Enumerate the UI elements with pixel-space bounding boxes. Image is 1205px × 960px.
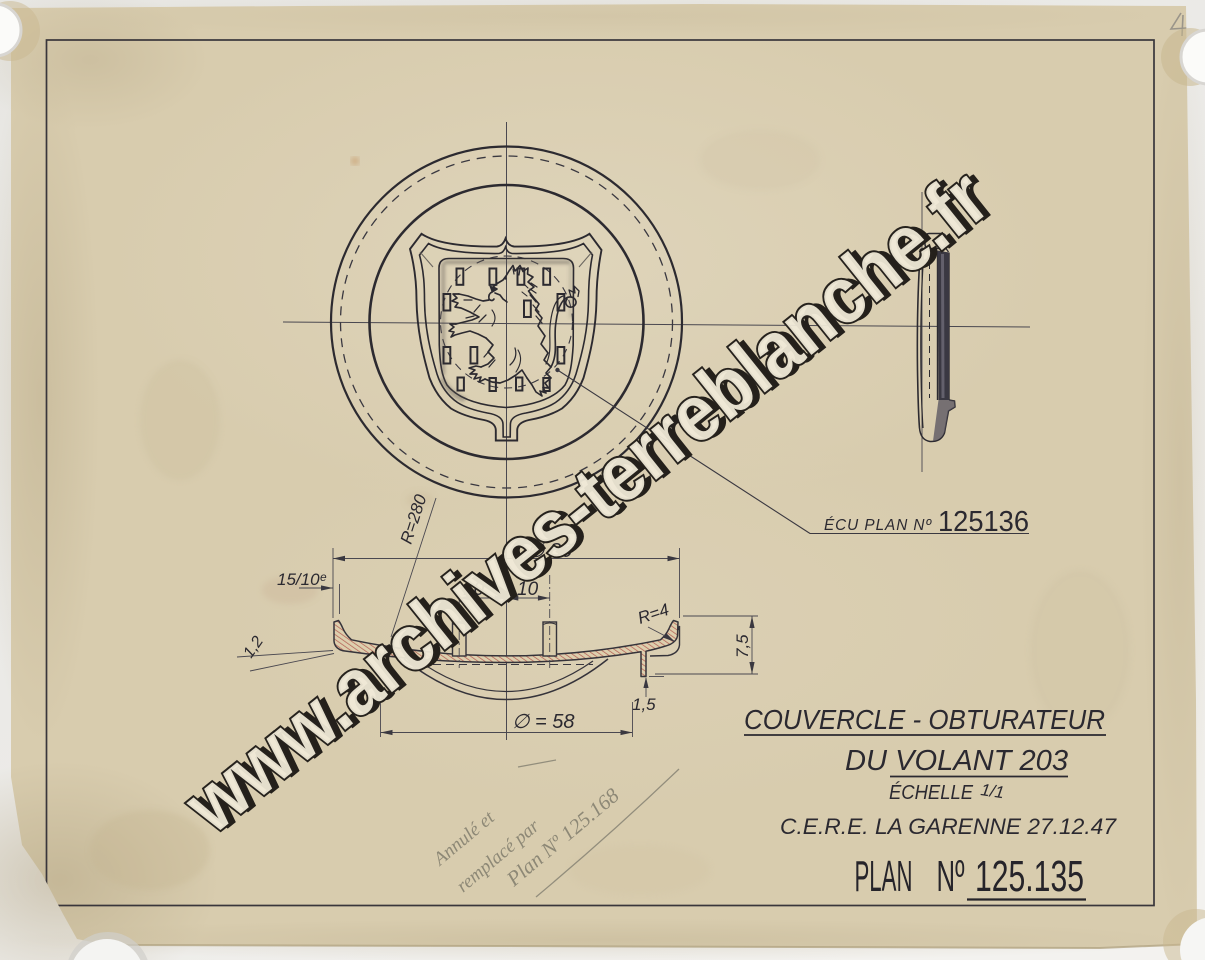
svg-text:PLAN: PLAN (855, 852, 913, 901)
svg-text:125.135: 125.135 (975, 852, 1084, 901)
svg-text:ÉCHELLE: ÉCHELLE (889, 781, 974, 804)
svg-text:15/10ᵉ: 15/10ᵉ (277, 570, 327, 589)
svg-text:DU VOLANT 203: DU VOLANT 203 (845, 745, 1068, 777)
svg-text:ÉCU PLAN Nº: ÉCU PLAN Nº (824, 515, 932, 534)
svg-text:1/1: 1/1 (979, 780, 1005, 802)
svg-text:Nº: Nº (937, 852, 965, 901)
svg-text:COUVERCLE - OBTURATEUR: COUVERCLE - OBTURATEUR (744, 704, 1105, 735)
svg-text:1,5: 1,5 (632, 695, 656, 714)
svg-text:7,5: 7,5 (733, 634, 752, 658)
svg-text:∅ = 58: ∅ = 58 (512, 711, 574, 733)
svg-text:125136: 125136 (938, 506, 1029, 538)
svg-text:C.E.R.E. LA GARENNE 27.12.47: C.E.R.E. LA GARENNE 27.12.47 (780, 814, 1117, 839)
